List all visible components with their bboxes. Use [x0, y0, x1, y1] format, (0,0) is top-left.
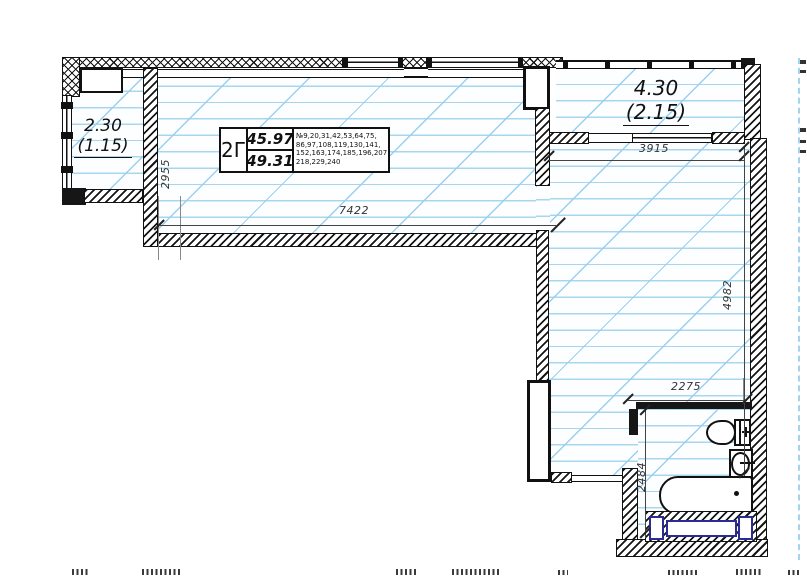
- railing-post: [563, 60, 568, 69]
- dim-4982: 4982: [721, 250, 737, 310]
- sink-bowl-icon: [731, 452, 750, 476]
- balcony-right-area: 4.30: [606, 76, 706, 100]
- dim-3915: 3915: [634, 142, 674, 155]
- edge-dash: [800, 150, 806, 153]
- glazing-post: [61, 102, 73, 109]
- blue-window-center: [666, 520, 737, 537]
- dim-line-2275: [628, 400, 747, 401]
- unit-area-top: 45.97: [248, 129, 292, 151]
- balcony-left-area: 2.30: [70, 116, 136, 136]
- dim-2275: 2275: [666, 380, 706, 393]
- railing-post: [731, 60, 736, 69]
- railing-post: [605, 60, 610, 69]
- corner-balcony-left: [62, 188, 86, 205]
- cutoff-fragment: [558, 570, 568, 575]
- window-inner-line: [123, 69, 541, 78]
- pilaster-top-left: [80, 68, 123, 93]
- unit-areas: 45.97 49.31: [248, 129, 294, 171]
- dim-line-4982: [744, 146, 745, 476]
- unit-area-bottom: 49.31: [248, 151, 292, 171]
- cutoff-fragment: [452, 569, 500, 575]
- window-top-2: [431, 57, 520, 68]
- bath-door-jamb: [629, 409, 638, 435]
- bathtub-icon: [659, 476, 753, 515]
- label-balcony-left: 2.30 (1.15): [70, 116, 136, 157]
- floor-plan: 7422 2955 3915 4982 2275 2484 2.30 (1.15…: [0, 0, 807, 576]
- wall-bath-partition: [636, 402, 752, 409]
- label-balcony-right: 4.30 (2.15): [606, 76, 706, 124]
- entry-opening: [572, 475, 624, 482]
- sink-tap-line: [740, 462, 755, 464]
- dim-line-7422: [160, 225, 556, 226]
- cutoff-fragment: [668, 570, 698, 575]
- extension-line: [158, 196, 159, 260]
- wall-wing-left-lower: [536, 230, 549, 382]
- dim-line-3915: [549, 160, 745, 161]
- wall-balcony-left-bottom: [84, 189, 143, 203]
- balcony-right-coeff: (2.15): [623, 100, 689, 126]
- dim-2484: 2484: [635, 444, 651, 492]
- edge-dash: [800, 60, 806, 64]
- unit-type: 2Г: [221, 129, 248, 171]
- cutoff-fragment: [142, 569, 180, 575]
- toilet-tank-line: [739, 421, 741, 444]
- wall-top-left-return: [62, 57, 80, 97]
- column-lower: [527, 380, 551, 482]
- mullion-post: [342, 57, 348, 68]
- railing-post: [689, 60, 694, 69]
- cutoff-fragment: [396, 569, 418, 575]
- column-upper: [523, 66, 550, 110]
- extension-line: [180, 196, 181, 260]
- wall-entry-stub: [551, 472, 572, 483]
- wall-main-bottom: [158, 233, 547, 247]
- cutoff-fragment: [736, 569, 762, 575]
- bathtub-drain: [734, 491, 739, 496]
- wall-main-left: [143, 68, 158, 247]
- window-sill-detail: [404, 68, 428, 77]
- wall-balcony-divider-right: [712, 132, 745, 144]
- edge-dash: [800, 70, 806, 73]
- window-top-1: [347, 57, 400, 68]
- unit-apartment-numbers: №9,20,31,42,53,64,75, 86,97,108,119,130,…: [294, 129, 389, 171]
- dim-2955: 2955: [159, 127, 175, 189]
- door-balcony-right: [589, 133, 632, 143]
- railing-post: [647, 60, 652, 69]
- mullion-post: [398, 57, 403, 68]
- edge-dash: [800, 140, 806, 143]
- toilet-cross-v: [745, 427, 747, 437]
- wall-wing-left-upper: [535, 108, 550, 186]
- blue-window-left: [649, 516, 664, 540]
- glazing-post: [61, 166, 73, 173]
- cutoff-fragment: [788, 570, 800, 575]
- mullion-post: [426, 57, 431, 68]
- dim-7422: 7422: [330, 204, 378, 217]
- edge-dash: [800, 128, 806, 132]
- adjacent-unit-dashed-line: [798, 58, 800, 560]
- unit-title-box: 2Г 45.97 49.31 №9,20,31,42,53,64,75, 86,…: [219, 127, 390, 173]
- blue-window-right: [738, 516, 753, 540]
- wall-balcony-right-side: [744, 64, 761, 140]
- toilet-bowl-icon: [706, 420, 736, 445]
- cutoff-fragment: [72, 569, 88, 575]
- balcony-left-coeff: (1.15): [74, 136, 131, 158]
